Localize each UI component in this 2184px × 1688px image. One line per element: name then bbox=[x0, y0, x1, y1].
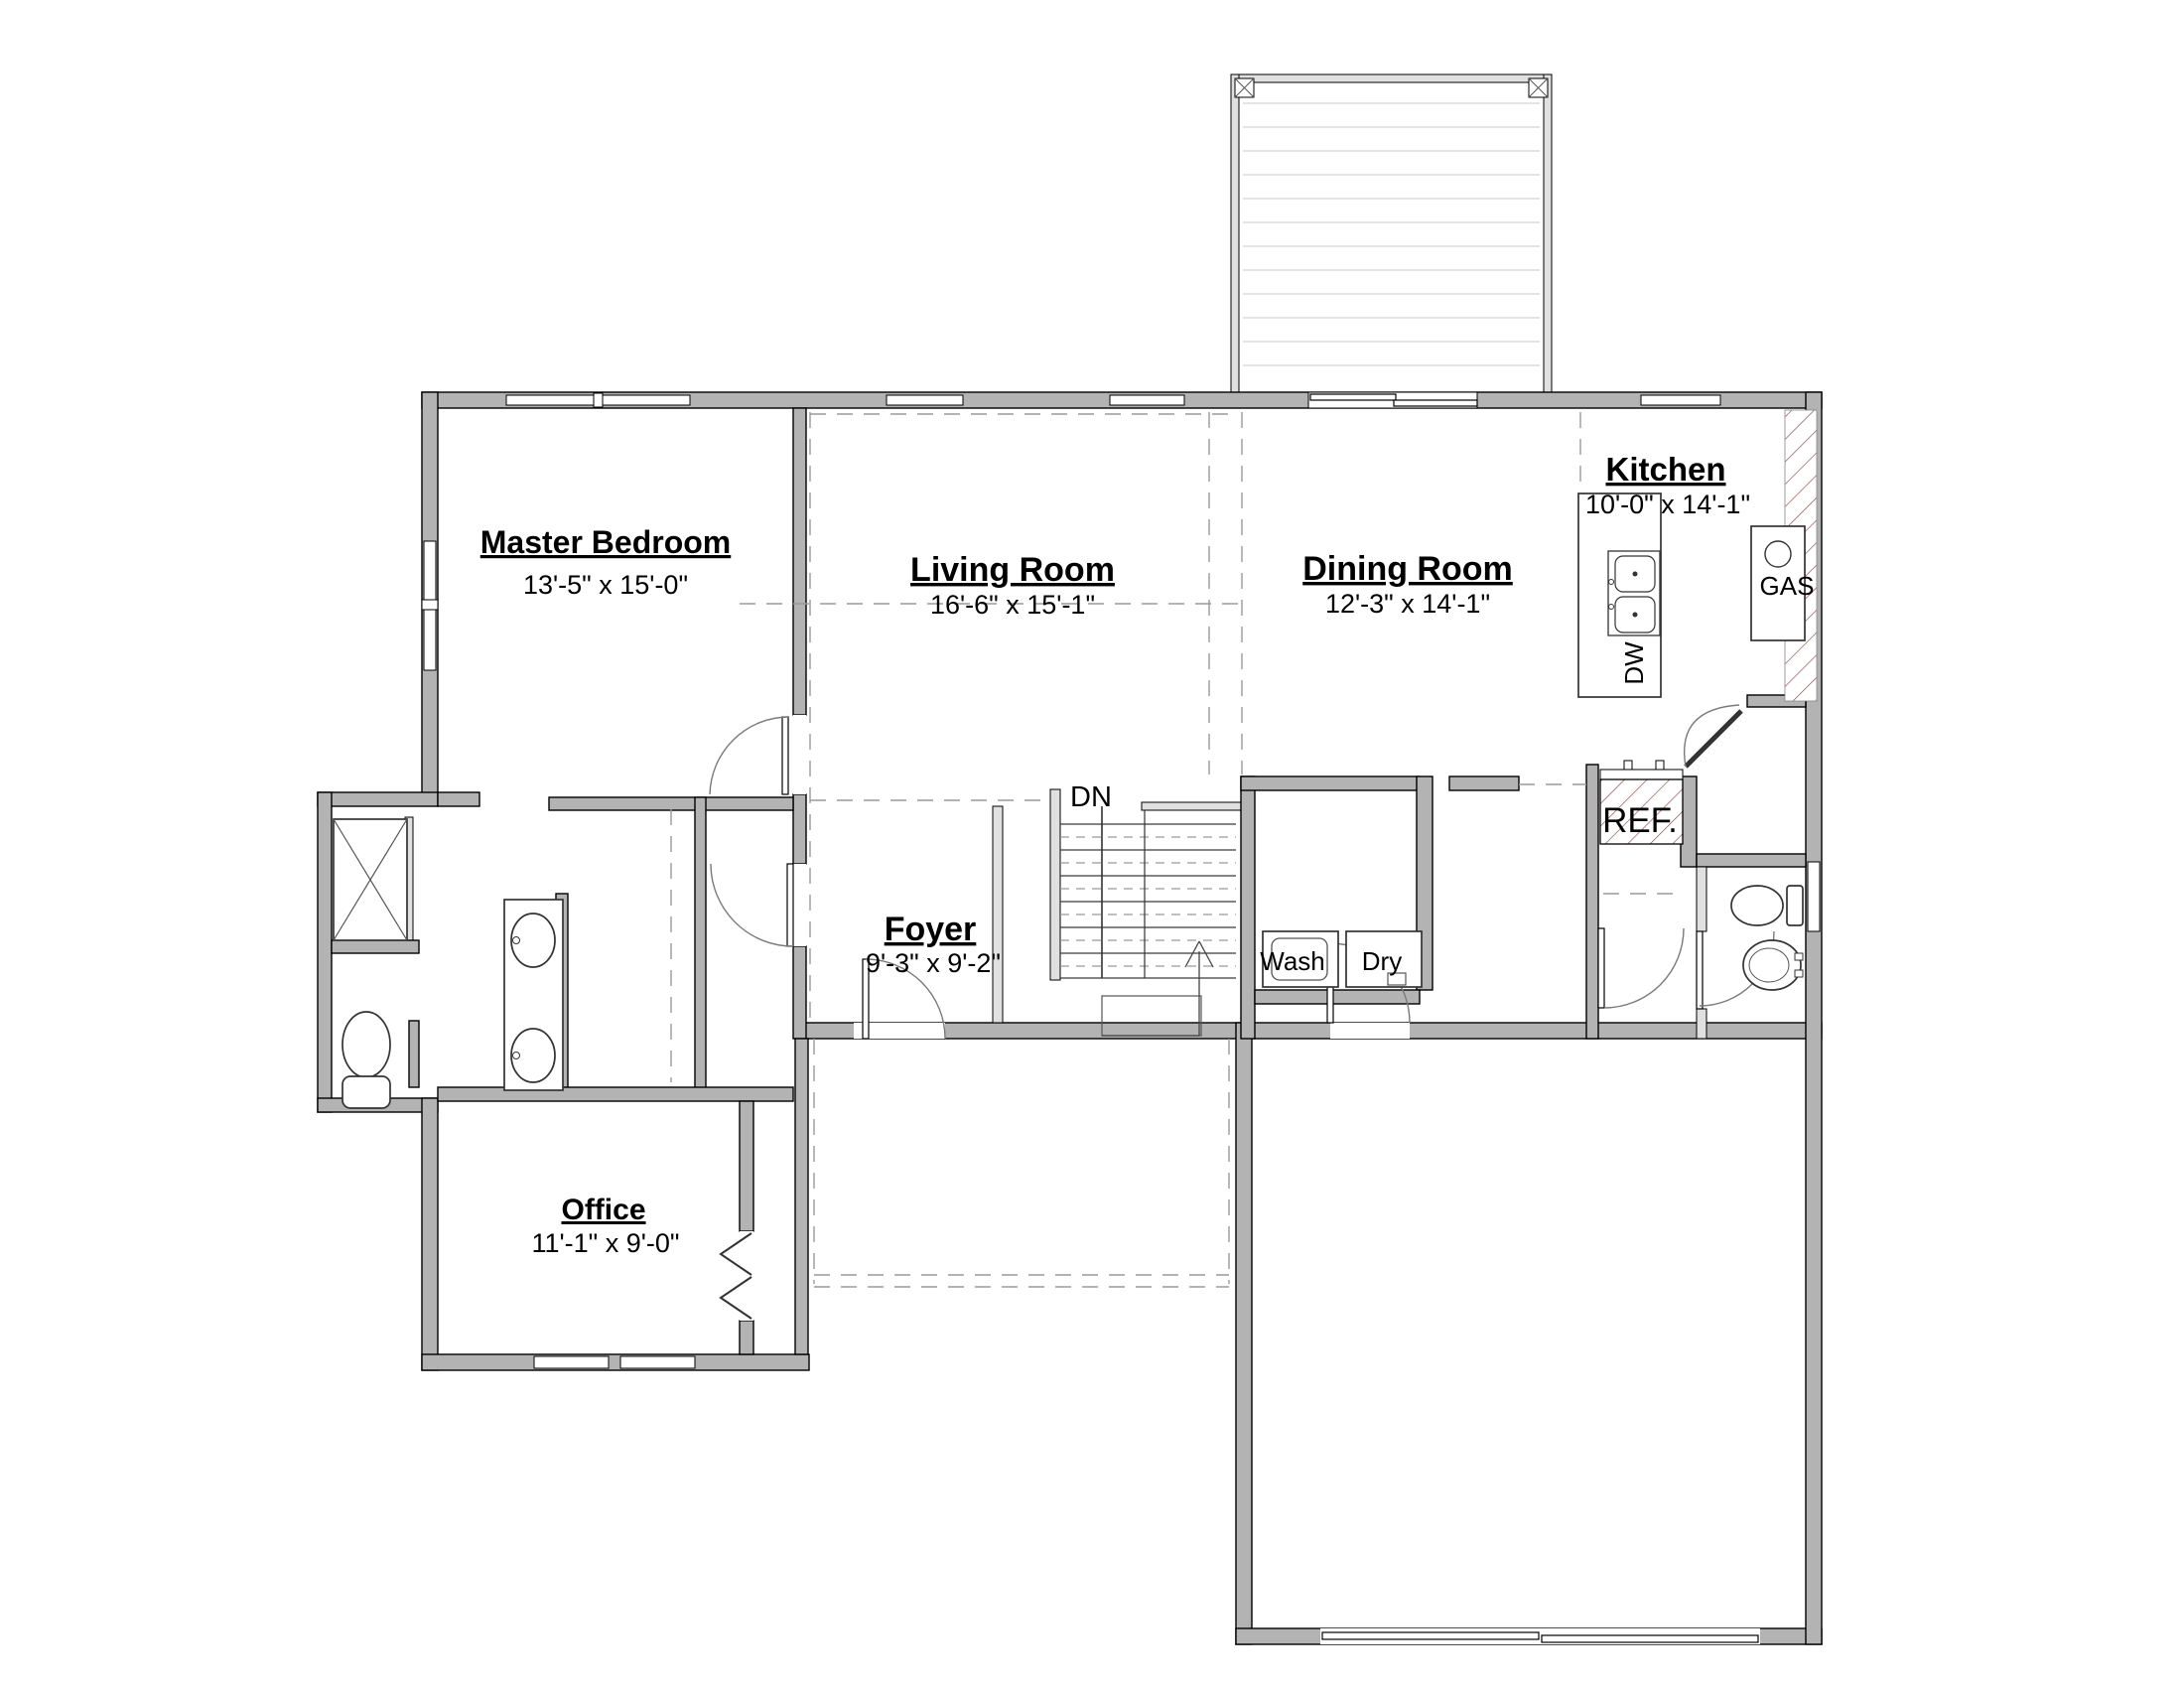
label-refrigerator: REF. bbox=[1602, 801, 1678, 840]
faucet bbox=[1795, 953, 1803, 960]
wall-toilet-stub bbox=[409, 1021, 419, 1087]
master-bath bbox=[334, 809, 671, 1108]
door-swing-pantry bbox=[1604, 928, 1684, 1008]
label-kitchen: Kitchen bbox=[1605, 451, 1725, 488]
wall-bath-left bbox=[318, 792, 332, 1112]
sink-drain bbox=[1633, 613, 1638, 618]
label-stairs-dn: DN bbox=[1070, 781, 1112, 813]
dims-master-bedroom: 13'-5" x 15'-0" bbox=[523, 570, 688, 600]
wall-foyer-left-lower bbox=[793, 946, 806, 1039]
wall-halfbath-left-upper bbox=[1697, 867, 1706, 931]
window-office-2 bbox=[620, 1356, 695, 1368]
stair-arrow bbox=[1185, 941, 1199, 967]
wall-office-right-upper bbox=[740, 1101, 753, 1231]
garage-door-panel-1 bbox=[1322, 1632, 1539, 1639]
wall-closet-top bbox=[549, 797, 793, 810]
wall-closet-strip-right bbox=[795, 1039, 808, 1354]
door-leaf-hall bbox=[787, 864, 793, 946]
deck bbox=[1231, 74, 1552, 394]
door-leaf-corner bbox=[1686, 711, 1741, 767]
wall-halfbath-top bbox=[1697, 854, 1806, 867]
floor-plan: Master Bedroom 13'-5" x 15'-0" Living Ro… bbox=[0, 0, 2184, 1688]
floor-plan-drawing: Master Bedroom 13'-5" x 15'-0" Living Ro… bbox=[0, 0, 2184, 1688]
window-mullion bbox=[422, 600, 438, 610]
dims-foyer: 9'-3" x 9'-2" bbox=[866, 948, 1001, 978]
wall-pantry-left bbox=[1586, 765, 1598, 1039]
wall-stairs-left bbox=[1050, 789, 1060, 980]
sink-drain bbox=[1633, 572, 1638, 577]
wall-bath-top bbox=[318, 792, 438, 806]
dims-office: 11'-1" x 9'-0" bbox=[531, 1228, 679, 1258]
window-mullion bbox=[594, 393, 603, 407]
wall-bath-top-inner bbox=[438, 792, 479, 806]
door-leaf-master bbox=[782, 717, 788, 794]
wall-foyer-east bbox=[993, 806, 1003, 1023]
wall-suite-bottom bbox=[438, 1087, 793, 1101]
toilet-tank bbox=[1787, 886, 1803, 925]
slider-panel-1 bbox=[1310, 394, 1396, 400]
label-dryer: Dry bbox=[1362, 946, 1402, 976]
wall-shower-bottom bbox=[332, 940, 419, 953]
label-dining-room: Dining Room bbox=[1302, 550, 1513, 588]
label-office: Office bbox=[561, 1194, 645, 1226]
label-master-bedroom: Master Bedroom bbox=[480, 524, 732, 560]
half-bath bbox=[1731, 886, 1803, 990]
vanity-sink-1 bbox=[511, 914, 555, 967]
opening-bifold bbox=[740, 1231, 753, 1321]
burner bbox=[1765, 541, 1791, 567]
wall-master-right-upper bbox=[793, 408, 806, 715]
wall-office-left bbox=[422, 1098, 438, 1370]
door-leaf-pantry bbox=[1598, 928, 1604, 1008]
wall-office-bottom bbox=[422, 1354, 809, 1370]
wall-closet-divider bbox=[695, 797, 706, 1092]
slider-panel-2 bbox=[1394, 400, 1477, 406]
window-office-1 bbox=[534, 1356, 609, 1368]
window-halfbath bbox=[1808, 862, 1820, 931]
garage-door-panel-2 bbox=[1542, 1635, 1758, 1642]
wall-garage-left bbox=[1236, 1023, 1252, 1644]
opening-hall bbox=[793, 864, 806, 946]
ref-knob bbox=[1656, 761, 1664, 770]
deck-wall bbox=[1231, 74, 1552, 82]
window-kitchen-top bbox=[1641, 395, 1720, 405]
ref-counter bbox=[1600, 770, 1683, 779]
dims-kitchen: 10'-0" x 14'-1" bbox=[1585, 490, 1750, 519]
vanity-sink-2 bbox=[511, 1029, 555, 1082]
label-dishwasher: DW bbox=[1619, 641, 1649, 685]
window-living-right bbox=[1110, 395, 1184, 405]
wall-master-right-mid bbox=[793, 794, 806, 864]
label-washer: Wash bbox=[1260, 946, 1325, 976]
stairs bbox=[1060, 806, 1236, 1036]
ref-knob bbox=[1624, 761, 1632, 770]
dims-living-room: 16'-6" x 15'-1" bbox=[930, 590, 1095, 620]
deck-wall bbox=[1231, 74, 1239, 394]
stair-arrow bbox=[1199, 941, 1213, 967]
door-leaf-halfbath bbox=[1697, 931, 1703, 1009]
label-living-room: Living Room bbox=[910, 551, 1115, 589]
toilet-bowl bbox=[1731, 886, 1783, 925]
dims-dining-room: 12'-3" x 14'-1" bbox=[1325, 589, 1490, 619]
opening-garage bbox=[1330, 1023, 1410, 1039]
threshold-hatch bbox=[1255, 990, 1420, 1004]
wall-hall-top bbox=[1449, 776, 1519, 790]
label-gas-range: GAS bbox=[1760, 571, 1815, 601]
wall-stairs-top bbox=[1142, 802, 1241, 810]
wall-halfbath-left-lower bbox=[1697, 1009, 1706, 1039]
label-foyer: Foyer bbox=[885, 911, 977, 948]
sink bbox=[1743, 940, 1801, 990]
toilet-bowl bbox=[342, 1012, 390, 1077]
door-swing-hall bbox=[711, 864, 793, 946]
wall-laundry-top bbox=[1241, 776, 1420, 790]
wall-office-right-lower bbox=[740, 1321, 753, 1354]
deck-wall bbox=[1544, 74, 1552, 394]
wall-front bbox=[795, 1023, 1822, 1039]
window-living-left bbox=[887, 395, 963, 405]
wall-laundry-left bbox=[1241, 776, 1255, 1039]
door-swing-master bbox=[710, 717, 789, 794]
opening-master bbox=[793, 715, 806, 794]
toilet-tank bbox=[342, 1076, 390, 1108]
faucet bbox=[1795, 970, 1803, 977]
